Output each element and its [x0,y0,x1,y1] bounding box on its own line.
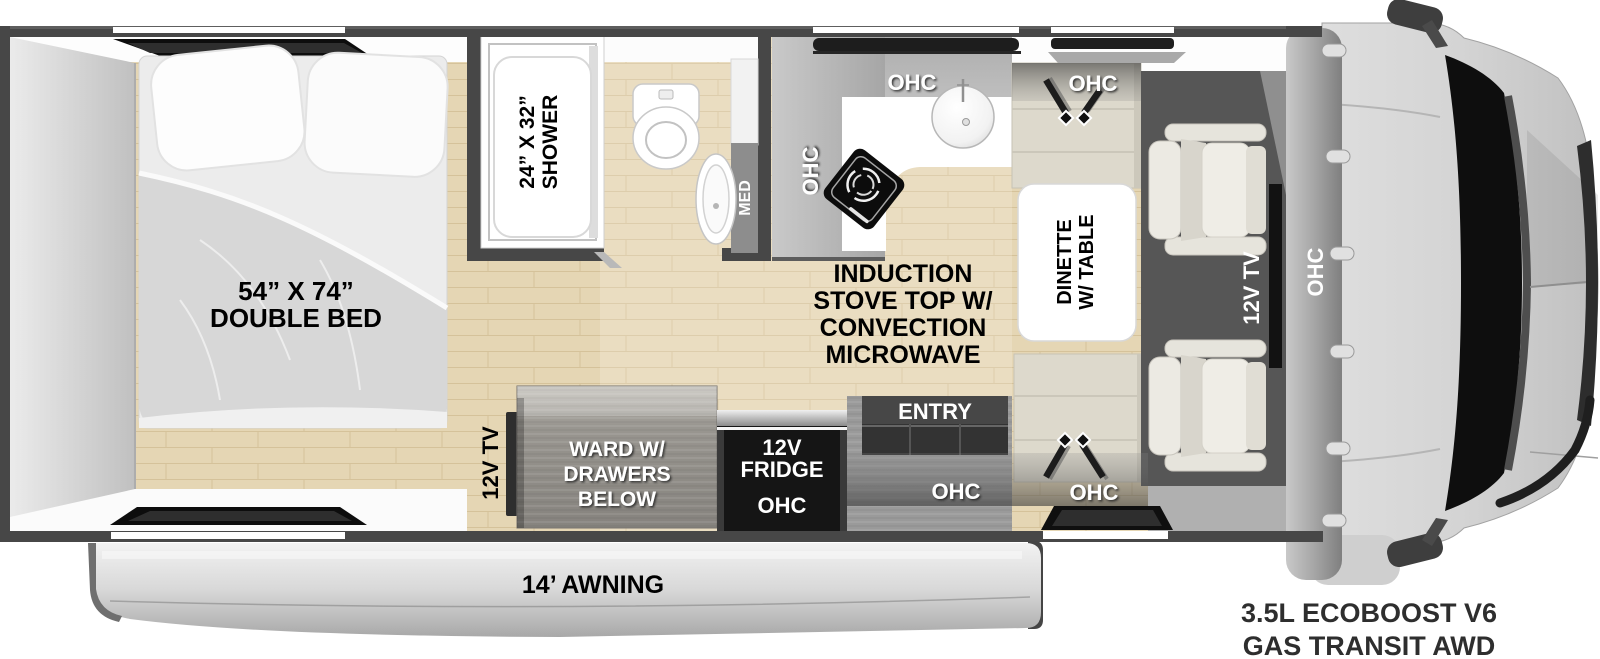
svg-text:OHC: OHC [1303,247,1328,296]
svg-text:CONVECTION: CONVECTION [820,314,987,342]
svg-text:OHC: OHC [1069,71,1118,96]
svg-text:OHC: OHC [798,146,823,195]
svg-text:SHOWER: SHOWER [539,95,562,190]
svg-text:MICROWAVE: MICROWAVE [825,341,980,369]
svg-text:WARD W/: WARD W/ [569,438,665,461]
svg-text:MED: MED [737,180,754,216]
svg-text:OHC: OHC [932,479,981,504]
svg-text:OHC: OHC [888,70,937,95]
svg-text:OHC: OHC [1070,480,1119,505]
svg-text:24” X 32”: 24” X 32” [516,95,539,188]
svg-text:14’ AWNING: 14’ AWNING [522,571,664,599]
svg-text:INDUCTION: INDUCTION [834,260,973,288]
svg-text:ENTRY: ENTRY [898,399,972,424]
svg-text:54” X 74”: 54” X 74” [238,276,354,306]
svg-text:FRIDGE: FRIDGE [740,457,823,482]
svg-text:DRAWERS: DRAWERS [563,463,670,486]
svg-text:GAS TRANSIT AWD: GAS TRANSIT AWD [1243,631,1496,659]
svg-text:DOUBLE BED: DOUBLE BED [210,303,382,333]
svg-text:BELOW: BELOW [578,488,656,511]
svg-text:OHC: OHC [758,493,807,518]
svg-text:STOVE TOP W/: STOVE TOP W/ [813,287,992,315]
svg-text:DINETTE: DINETTE [1054,219,1076,305]
svg-text:3.5L ECOBOOST V6: 3.5L ECOBOOST V6 [1241,598,1497,628]
svg-text:12V TV: 12V TV [1239,251,1264,325]
svg-text:W/ TABLE: W/ TABLE [1076,214,1098,309]
svg-text:12V TV: 12V TV [478,426,503,500]
